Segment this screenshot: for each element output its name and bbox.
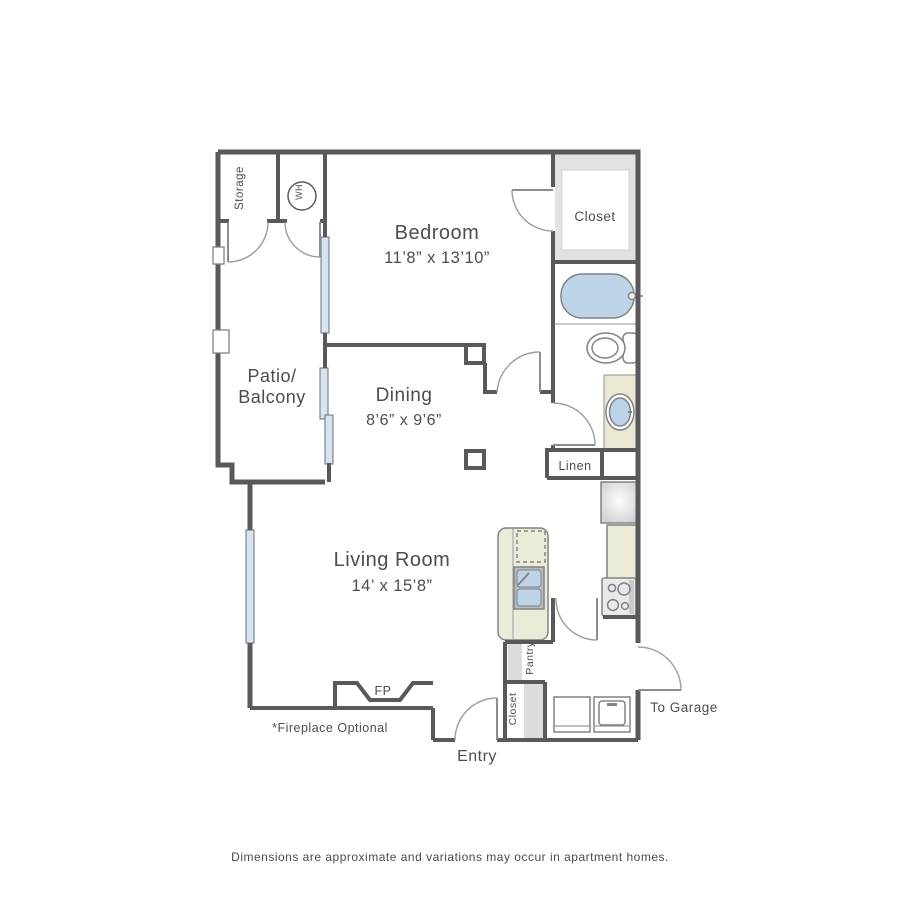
bedroom-door bbox=[497, 352, 540, 392]
floorplan-drawing: Storage WH Bedroom 11’8” x 13’10” Closet… bbox=[0, 0, 900, 900]
bedroom-closet-label: Closet bbox=[574, 209, 615, 224]
kitchen-sink bbox=[514, 567, 544, 609]
entry-closet-shelf bbox=[524, 684, 543, 738]
living-room-dims: 14’ x 15’8” bbox=[351, 577, 432, 595]
windows bbox=[246, 237, 333, 643]
storage-label: Storage bbox=[234, 166, 246, 210]
pantry-label: Pantry bbox=[524, 641, 536, 675]
patio-wall-opening-lower bbox=[213, 330, 229, 353]
bedroom-closet-shelving bbox=[555, 154, 636, 260]
bathtub bbox=[561, 274, 643, 318]
tub-faucet bbox=[629, 293, 636, 300]
patio-label-line1: Patio/ bbox=[247, 366, 296, 386]
linen-label: Linen bbox=[558, 459, 591, 473]
storage-door bbox=[228, 222, 268, 262]
water-heater-door bbox=[285, 222, 320, 257]
bathroom-door bbox=[553, 403, 595, 445]
pantry-shelf bbox=[508, 644, 522, 680]
water-heater-label: WH bbox=[294, 184, 304, 200]
floorplan-page: Storage WH Bedroom 11’8” x 13’10” Closet… bbox=[0, 0, 900, 900]
living-room-label: Living Room bbox=[334, 549, 451, 571]
doors bbox=[228, 190, 681, 740]
bathroom-vanity bbox=[604, 375, 638, 449]
dining-dims: 8’6” x 9’6” bbox=[366, 412, 442, 429]
bedroom-label: Bedroom bbox=[395, 222, 480, 244]
fireplace-label: FP bbox=[375, 684, 392, 698]
patio-label-line2: Balcony bbox=[238, 387, 306, 407]
washer bbox=[554, 697, 590, 732]
living-room-window bbox=[246, 530, 254, 643]
bedroom-dims: 11’8” x 13’10” bbox=[384, 249, 490, 267]
dining-window-lower bbox=[325, 415, 333, 464]
refrigerator bbox=[601, 482, 638, 523]
dryer bbox=[594, 697, 630, 732]
garage-door bbox=[638, 647, 681, 690]
dining-label: Dining bbox=[376, 385, 433, 406]
fireplace-note: *Fireplace Optional bbox=[272, 721, 388, 735]
disclaimer-text: Dimensions are approximate and variation… bbox=[231, 850, 669, 864]
toilet bbox=[587, 333, 638, 363]
kitchen-door bbox=[556, 598, 597, 640]
bedroom-closet-door bbox=[512, 190, 553, 231]
dining-column-bottom bbox=[466, 451, 484, 468]
patio-wall-opening-upper bbox=[213, 247, 224, 264]
to-garage-label: To Garage bbox=[650, 700, 718, 715]
bedroom-window bbox=[321, 237, 329, 333]
entry-door bbox=[455, 698, 497, 740]
entry-label: Entry bbox=[457, 748, 497, 765]
stove bbox=[602, 578, 636, 616]
entry-closet-label: Closet bbox=[507, 693, 519, 726]
dining-column-top bbox=[466, 345, 484, 363]
dining-window-upper bbox=[320, 368, 328, 419]
